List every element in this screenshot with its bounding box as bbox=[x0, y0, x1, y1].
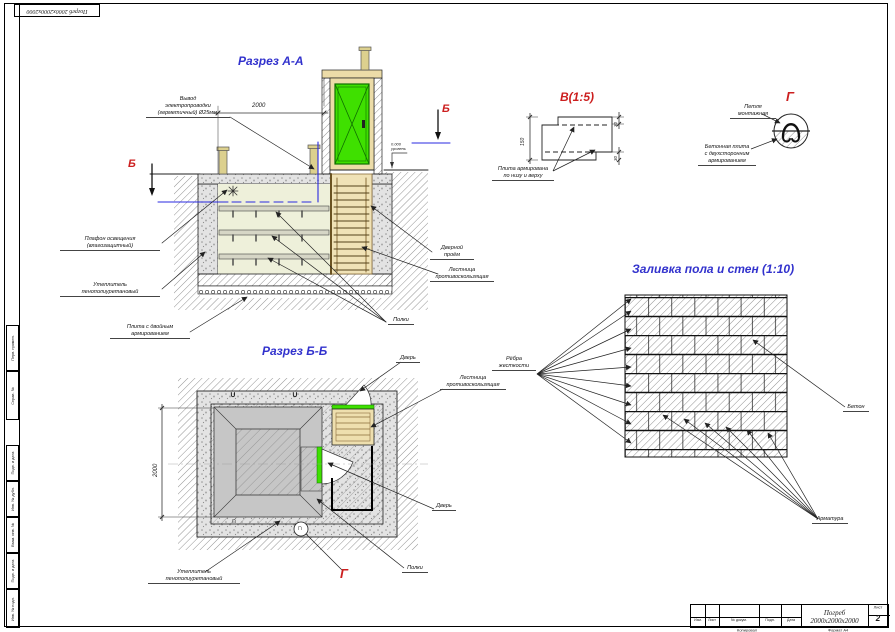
label-shelves-bb: Полки bbox=[402, 565, 428, 573]
title-block-col: Изм. bbox=[694, 618, 702, 622]
loop-mark: ∩ bbox=[231, 516, 237, 525]
margin-box-label: Взам. инв. № bbox=[11, 523, 15, 547]
dim-v-cover-bottom: 30 bbox=[613, 156, 618, 161]
label-lamp: Плафон освещения (влагозащитный) bbox=[60, 236, 160, 251]
margin-box: Справ. № bbox=[6, 371, 19, 420]
dim-aa-width: 2000 bbox=[252, 103, 265, 109]
margin-box: Инв. № дубл. bbox=[6, 481, 19, 517]
loop-mark: ∪ bbox=[292, 390, 298, 399]
dim-v-cover-top: 30 bbox=[613, 122, 618, 127]
sheet-frame-left bbox=[19, 3, 20, 628]
label-insulation-bb: Утеплитель пенополиуретановый bbox=[148, 569, 240, 584]
section-aa-title: Разрез А-А bbox=[238, 54, 304, 68]
title-block-project: Погреб 2000х2000х2000 bbox=[801, 609, 868, 625]
margin-box: Взам. инв. № bbox=[6, 517, 19, 553]
label-ladder-bb: Лестница противоскользящая bbox=[440, 375, 506, 390]
title-block: Изм. Лист № докум. Подп. Дата Погреб 200… bbox=[690, 604, 889, 628]
section-marker-b-right: Б bbox=[442, 103, 450, 115]
label-door-opening: Дверной проём bbox=[430, 245, 474, 260]
drawing-sheet: Погреб 2000х2000х2000 Перв. примен. Спра… bbox=[0, 0, 895, 632]
footer-copied: Копировал bbox=[737, 628, 757, 632]
label-door-inner: Дверь bbox=[432, 503, 456, 511]
label-lifting-loop: Петля монтажная bbox=[730, 104, 776, 119]
label-wiring: Вывод электропроводки (герметичный) Ø25м… bbox=[146, 96, 230, 118]
label-ribs: Рёбра жесткости bbox=[492, 356, 536, 371]
margin-box: Перв. примен. bbox=[6, 325, 19, 371]
margin-box: Подп. и дата bbox=[6, 445, 19, 481]
detail-g-callout: Г bbox=[340, 566, 348, 581]
loop-mark-circled: ∩ bbox=[297, 523, 303, 532]
pour-plan-title: Заливка пола и стен (1:10) bbox=[632, 262, 794, 276]
margin-box-label: Инв. № подл. bbox=[11, 597, 15, 621]
loop-mark: ∪ bbox=[230, 390, 236, 399]
dim-bb-width: 2000 bbox=[153, 464, 159, 477]
label-rebar: Арматура bbox=[812, 516, 848, 524]
corner-stamp: Погреб 2000х2000х2000 bbox=[14, 4, 100, 17]
dim-v-height: 150 bbox=[520, 138, 526, 146]
sheet-frame bbox=[4, 3, 888, 627]
title-block-col: Дата bbox=[787, 618, 795, 622]
label-door-entry: Дверь bbox=[396, 355, 420, 363]
label-shelves-aa: Полки bbox=[388, 317, 414, 325]
section-marker-b-left: Б bbox=[128, 158, 136, 170]
section-bb-title: Разрез Б-Б bbox=[262, 344, 327, 358]
margin-box-label: Подп. и дата bbox=[11, 452, 15, 475]
margin-box-label: Инв. № дубл. bbox=[11, 487, 15, 511]
footer-format: Формат А4 bbox=[828, 628, 848, 632]
title-block-sheet-number: 2 bbox=[868, 614, 888, 623]
margin-box: Подп. и дата bbox=[6, 553, 19, 589]
title-block-col: Подп. bbox=[765, 618, 775, 622]
margin-box-label: Подп. и дата bbox=[11, 560, 15, 583]
label-slab: Плита с двойным армированием bbox=[110, 324, 190, 339]
label-slab-reinforced: Плита армирована по низу и верху bbox=[492, 166, 554, 181]
title-block-col: № докум. bbox=[731, 618, 747, 622]
level-mark-text: 0.000 уровень bbox=[391, 142, 406, 151]
title-block-sheet-label: Лист bbox=[873, 605, 883, 610]
detail-v-title: В(1:5) bbox=[560, 90, 594, 104]
margin-box: Инв. № подл. bbox=[6, 589, 19, 628]
label-concrete: Бетон bbox=[843, 404, 869, 412]
label-concrete-slab: Бетонная плита с двухсторонним армирован… bbox=[698, 144, 756, 166]
margin-box-label: Справ. № bbox=[11, 387, 15, 404]
label-ladder-aa: Лестница противоскользящая bbox=[430, 267, 494, 282]
title-block-col: Лист bbox=[708, 618, 716, 622]
label-insulation-aa: Утеплитель пенополиуретановый bbox=[60, 282, 160, 297]
corner-stamp-text: Погреб 2000х2000х2000 bbox=[26, 8, 87, 14]
margin-box-label: Перв. примен. bbox=[11, 335, 15, 361]
detail-g-title: Г bbox=[786, 89, 794, 104]
